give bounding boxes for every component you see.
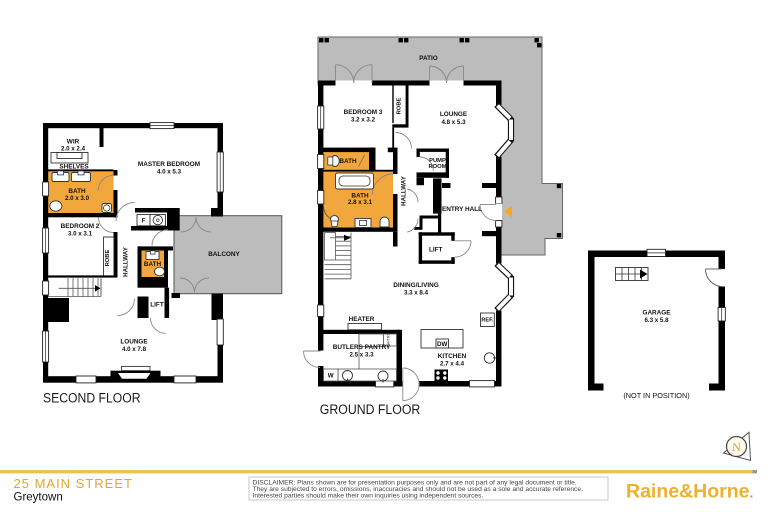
svg-text:6.3 x 5.8: 6.3 x 5.8 [644, 317, 669, 324]
svg-text:DINING/LIVING: DINING/LIVING [393, 282, 438, 289]
svg-text:2.0 x 3.0: 2.0 x 3.0 [65, 195, 90, 202]
svg-text:LOUNGE: LOUNGE [120, 339, 148, 346]
svg-text:BATH: BATH [339, 158, 357, 165]
svg-text:BUTLERS PANTRY: BUTLERS PANTRY [333, 344, 391, 351]
svg-text:BALCONY: BALCONY [208, 251, 240, 258]
svg-text:HALLWAY: HALLWAY [123, 246, 130, 277]
svg-text:SECOND FLOOR: SECOND FLOOR [43, 390, 141, 406]
svg-text:BEDROOM 2: BEDROOM 2 [61, 223, 100, 230]
svg-text:REF.: REF. [481, 318, 494, 324]
svg-text:BATH: BATH [68, 188, 86, 195]
svg-text:LIFT: LIFT [429, 246, 443, 253]
svg-text:4.8 x 5.3: 4.8 x 5.3 [441, 119, 466, 126]
svg-text:3.3 x 8.4: 3.3 x 8.4 [404, 290, 429, 297]
svg-text:2.0 x 2.4: 2.0 x 2.4 [61, 146, 86, 153]
svg-text:PATIO: PATIO [419, 55, 438, 62]
svg-text:HEATER: HEATER [349, 316, 375, 323]
svg-text:2.8 x 3.1: 2.8 x 3.1 [348, 199, 373, 206]
svg-text:ROBE: ROBE [105, 249, 111, 266]
svg-text:3.2 x 3.2: 3.2 x 3.2 [351, 117, 376, 124]
svg-text:Raine&Horne.: Raine&Horne. [626, 481, 753, 503]
svg-text:4.0 x 5.3: 4.0 x 5.3 [157, 169, 182, 176]
svg-text:(NOT IN POSITION): (NOT IN POSITION) [623, 391, 689, 400]
svg-text:N: N [732, 440, 741, 454]
svg-text:LIFT: LIFT [150, 302, 164, 309]
svg-text:Interested parties should make: Interested parties should make their own… [253, 493, 484, 500]
svg-text:GARAGE: GARAGE [642, 310, 671, 317]
svg-text:4.0 x 7.8: 4.0 x 7.8 [122, 346, 147, 353]
svg-text:ROOM: ROOM [428, 164, 446, 170]
svg-text:MASTER BEDROOM: MASTER BEDROOM [138, 161, 200, 168]
svg-text:WIR: WIR [67, 139, 80, 146]
svg-text:25 MAIN STREET: 25 MAIN STREET [14, 476, 133, 491]
svg-text:GROUND FLOOR: GROUND FLOOR [320, 402, 421, 418]
svg-text:KITCHEN: KITCHEN [438, 353, 467, 360]
svg-text:LOUNGE: LOUNGE [440, 111, 468, 118]
svg-text:3.0 x 3.1: 3.0 x 3.1 [68, 231, 93, 238]
svg-text:ROBE: ROBE [397, 97, 403, 114]
svg-text:BEDROOM 3: BEDROOM 3 [344, 109, 383, 116]
svg-text:Greytown: Greytown [14, 492, 63, 504]
svg-text:DW: DW [437, 341, 447, 348]
svg-text:HALLWAY: HALLWAY [401, 175, 408, 206]
svg-text:W: W [328, 373, 334, 380]
svg-text:F: F [142, 218, 146, 225]
svg-text:SHELVES: SHELVES [59, 164, 89, 171]
svg-text:ENTRY HALL: ENTRY HALL [442, 206, 482, 213]
svg-text:2.5 x 3.3: 2.5 x 3.3 [349, 352, 374, 359]
svg-text:2.7 x 4.4: 2.7 x 4.4 [440, 361, 465, 368]
